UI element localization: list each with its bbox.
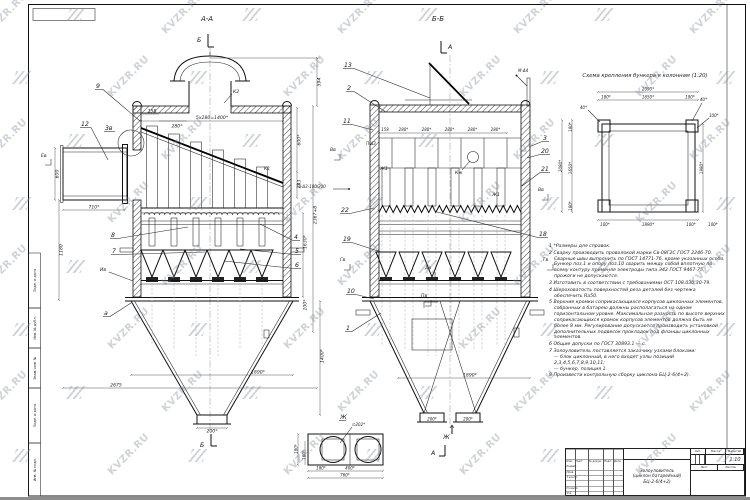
tb-drawing-name: Золоуловитель (циклон батарейный) БЦ-2-6… [624, 460, 690, 495]
svg-text:280*: 280* [468, 127, 478, 132]
bb-cyclone-cones [376, 252, 521, 284]
view-aa-title: А-А [200, 15, 213, 23]
svg-text:Ев: Ев [41, 153, 47, 159]
svg-text:200*: 200* [427, 417, 437, 422]
svg-text:Б: Б [200, 442, 204, 449]
svg-text:594: 594 [317, 78, 323, 87]
note-5: 5 Верхние кромки соприкасающихся корпусо… [549, 300, 725, 341]
tb-header-listov: Листов [718, 465, 744, 470]
svg-text:158: 158 [381, 127, 389, 132]
svg-text:100*: 100* [708, 222, 718, 227]
svg-text:2: 2 [347, 85, 351, 92]
svg-text:280*: 280* [171, 124, 183, 130]
svg-text:Т2-Δ3-100/200: Т2-Δ3-100/200 [296, 184, 326, 189]
tb-lit-cells [691, 455, 706, 464]
svg-text:А: А [447, 44, 452, 51]
svg-text:Вв: Вв [538, 187, 544, 193]
margin-stamp-label: Инв. № подл. [33, 458, 37, 481]
svg-text:Ж1: Ж1 [379, 166, 388, 172]
section-marker-b-bottom: Б [200, 434, 217, 449]
svg-text:Гв: Гв [543, 257, 549, 263]
tb-name-line3: БЦ-2-6(4+2) [643, 480, 670, 486]
svg-text:710*: 710* [88, 205, 100, 211]
svg-text:1650*: 1650* [568, 162, 573, 174]
svg-text:11: 11 [343, 118, 351, 125]
svg-text:3в: 3в [105, 125, 113, 132]
label-k2: К2 [233, 89, 239, 95]
margin-stamp-label: Подп. и дата [33, 404, 37, 427]
title-block-signature-grid: Изм. Лист № докум. Подп. Дата Разраб. Пр… [566, 449, 624, 495]
tb-header-masshtab: Масштаб [726, 449, 744, 454]
tb-header-izm: Изм. [567, 460, 573, 463]
svg-text:5х280=1400*: 5х280=1400* [196, 115, 229, 121]
margin-stamp-label: Подп. и дата [33, 269, 37, 292]
view-bb-title: Б-Б [432, 15, 444, 23]
bunker-mounting-scheme: Схема крепления бункера к колоннам (1:20… [558, 73, 719, 227]
note-7: 7 Золоуловитель поставляется заказчику у… [549, 349, 725, 372]
bb-weld-flag: М-Δ4 [516, 68, 531, 106]
svg-text:13: 13 [344, 62, 352, 69]
svg-text:280*: 280* [399, 127, 409, 132]
svg-text:200*: 200* [463, 417, 473, 422]
svg-text:600: 600 [55, 170, 61, 179]
svg-text:Пв: Пв [421, 293, 427, 299]
bb-top-cells: 158 280* 280* 280* 280* 280* П-Δ3 [366, 127, 521, 168]
svg-text:200*: 200* [206, 429, 218, 435]
aa-inlet-duct [61, 145, 128, 204]
svg-text:400*: 400* [345, 466, 355, 471]
svg-text:1890*: 1890* [251, 370, 266, 376]
tb-header-lit: Лит. [691, 449, 706, 454]
tb-row-razrab: Разраб. [567, 465, 577, 468]
tb-row-prov: Пров. [567, 471, 575, 474]
svg-text:П-Δ3: П-Δ3 [366, 141, 376, 146]
technical-notes: 1 *Размеры для справок. 2 Сварку произво… [549, 244, 725, 380]
svg-text:100*: 100* [686, 222, 696, 227]
svg-text:12: 12 [81, 121, 89, 128]
svg-text:10: 10 [347, 288, 355, 295]
svg-text:5: 5 [295, 248, 299, 255]
svg-text:20: 20 [541, 148, 549, 155]
svg-text:21: 21 [541, 166, 549, 173]
aa-bracket-left [120, 248, 133, 252]
svg-text:180*: 180* [568, 201, 573, 211]
note-3: 3 Изготовить в соответствии с требования… [549, 281, 725, 287]
svg-text:40*: 40* [700, 97, 707, 102]
tb-scale-value: 1:10 [726, 455, 744, 464]
svg-text:Ж1: Ж1 [491, 192, 500, 198]
note-1: 1 *Размеры для справок. [549, 244, 725, 250]
svg-text:180*: 180* [294, 444, 299, 454]
svg-text:100*: 100* [600, 222, 610, 227]
aa-hopper [125, 284, 299, 424]
note-6: 6 Общие допуски по ГОСТ 30893.1 — с. [549, 342, 725, 348]
svg-text:А: А [430, 450, 435, 457]
svg-text:Ив: Ив [100, 267, 106, 273]
svg-text:40*: 40* [580, 105, 587, 110]
tb-empty-cell [691, 471, 744, 495]
tb-header-dokum: № докум. [589, 460, 602, 463]
svg-text:1650*: 1650* [642, 95, 654, 100]
section-marker-a-top: А [441, 41, 452, 53]
tb-header-massa: Масса [706, 449, 726, 454]
svg-text:600*: 600* [297, 134, 303, 146]
svg-text:2675: 2675 [110, 383, 122, 389]
svg-text:100*: 100* [709, 113, 719, 118]
svg-text:18: 18 [539, 231, 547, 238]
bb-roof-flap [405, 63, 472, 105]
svg-text:1180: 1180 [59, 244, 65, 256]
margin-stamp-label: Взам. инв. № [33, 356, 37, 379]
svg-text:280*: 280* [445, 127, 455, 132]
svg-text:3: 3 [543, 135, 547, 142]
note-2: 2 Сварку производить проволокой марки Св… [549, 251, 725, 280]
svg-text:190*: 190* [685, 95, 695, 100]
tb-document-number-cell [624, 449, 690, 460]
svg-text:7: 7 [112, 248, 116, 255]
svg-text:Ж: Ж [442, 434, 450, 441]
tb-row-utv: Утв. [567, 492, 572, 495]
svg-text:280*: 280* [491, 127, 501, 132]
svg-text:760*: 760* [340, 473, 350, 478]
svg-text:100*: 100* [303, 299, 309, 311]
svg-text:180*: 180* [316, 466, 326, 471]
svg-text:280*: 280* [422, 127, 432, 132]
bb-bottom-markers: Ж А [430, 425, 454, 457]
svg-text:Гв: Гв [340, 257, 346, 263]
svg-text:1400*: 1400* [320, 348, 326, 363]
tb-row-nkontr: Н.контр. [567, 487, 579, 490]
svg-text:19: 19 [343, 236, 351, 243]
section-aa-view: А-А Б К2 [41, 15, 326, 449]
svg-text:160*: 160* [302, 450, 307, 460]
tb-header-list2: Лист [691, 465, 718, 470]
svg-text:1890*: 1890* [463, 373, 478, 379]
svg-text:22: 22 [341, 207, 349, 214]
note-4: 4 Шероховатость поверхностей реза детале… [549, 288, 725, 300]
svg-text:1630*: 1630* [303, 234, 309, 249]
svg-text:Кж: Кж [455, 170, 463, 176]
svg-text:8: 8 [111, 232, 115, 239]
tb-row-tkontr: Т.контр. [567, 476, 578, 479]
section-bb-view: Б-Б А М-Δ4 158 280* 280* 280* 280* 280* [296, 15, 553, 457]
scheme-title: Схема крепления бункера к колоннам (1:20… [582, 73, 707, 79]
svg-text:1: 1 [346, 325, 350, 332]
aa-tube-sheet [141, 208, 283, 225]
note-8: 8 Произвести контрольную сборку циклона … [549, 373, 725, 379]
aa-gas-distribution [141, 126, 283, 208]
svg-text:9: 9 [96, 83, 100, 90]
svg-text:∅202*: ∅202* [352, 422, 365, 427]
svg-text:158: 158 [148, 109, 157, 115]
svg-text:4: 4 [294, 234, 298, 241]
section-marker-b-top: Б [197, 34, 214, 47]
svg-text:1990*: 1990* [699, 162, 704, 174]
tb-header-data: Дата [614, 460, 621, 463]
svg-text:180*: 180* [601, 95, 611, 100]
svg-text:К1: К1 [264, 166, 270, 172]
tb-header-list: Лист [576, 460, 583, 463]
svg-text:Б: Б [197, 37, 201, 44]
svg-text:а: а [104, 310, 108, 317]
svg-text:Вв: Вв [330, 147, 336, 153]
margin-stamp-label: Инв. № дубл. [33, 316, 37, 339]
svg-text:2090*: 2090* [642, 87, 654, 92]
zh-title: Ж [339, 414, 347, 421]
blueprint-page: KVZR.RUKVZR.RUKVZR.RUKVZR.RUKVZR.RUKVZR.… [0, 0, 750, 500]
svg-text:180*: 180* [568, 122, 573, 132]
svg-text:М-Δ4: М-Δ4 [518, 68, 529, 73]
tb-header-podp: Подп. [604, 460, 612, 463]
svg-text:2367+8: 2367+8 [313, 206, 319, 225]
svg-text:2090*: 2090* [558, 160, 563, 172]
svg-text:1890*: 1890* [642, 222, 654, 227]
svg-text:6: 6 [295, 262, 299, 269]
title-block: Изм. Лист № докум. Подп. Дата Разраб. Пр… [565, 448, 745, 496]
tb-massa-cell [706, 455, 726, 464]
zh-detail-view: Ж ∅202* 180* 160* 180* 400* 760* [294, 414, 384, 478]
svg-text:Дв: Дв [424, 265, 432, 271]
